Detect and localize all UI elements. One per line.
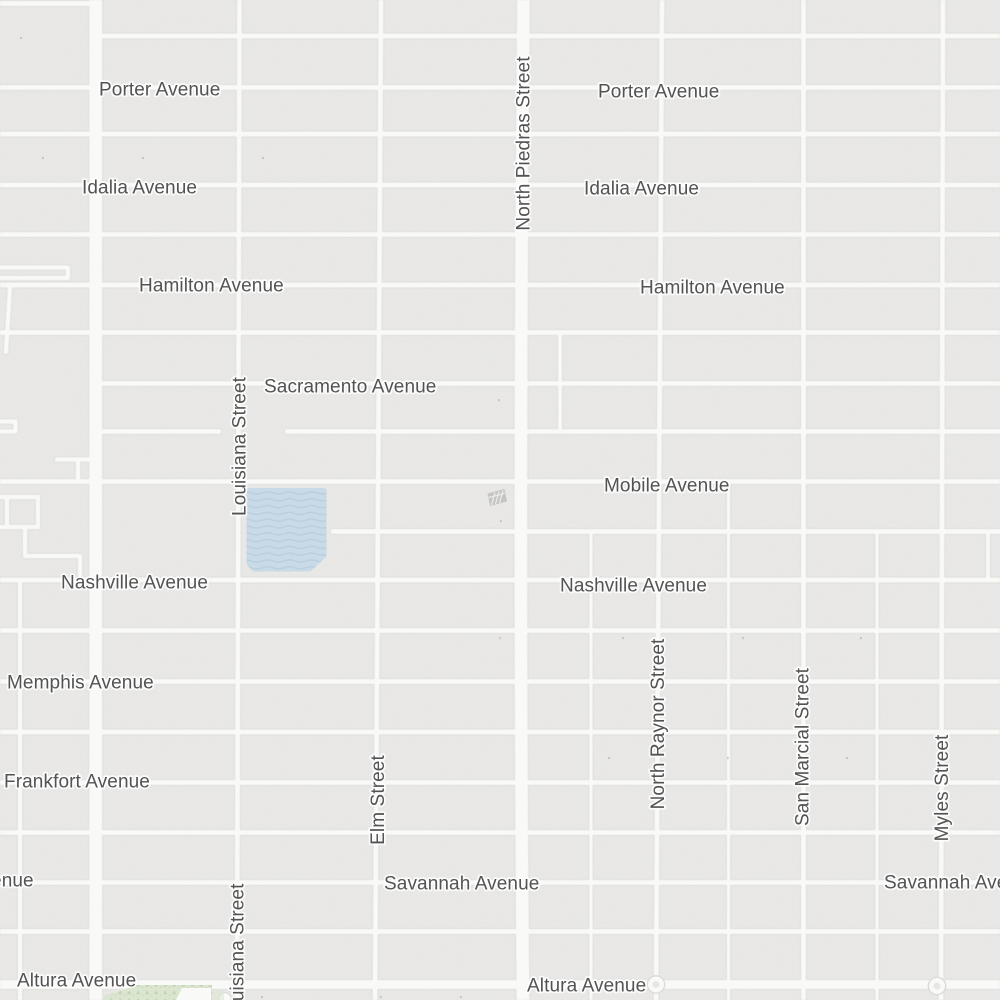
- svg-text:Savannah Avenue: Savannah Avenue: [884, 873, 1000, 894]
- svg-text:San Marcial Street: San Marcial Street: [793, 667, 814, 826]
- svg-text:North Raynor Street: North Raynor Street: [648, 638, 669, 809]
- svg-text:Sacramento Avenue: Sacramento Avenue: [264, 377, 436, 398]
- svg-text:Altura Avenue: Altura Avenue: [527, 976, 646, 997]
- svg-text:Savannah Avenue: Savannah Avenue: [384, 874, 539, 895]
- svg-text:Mobile Avenue: Mobile Avenue: [604, 476, 730, 497]
- svg-text:Porter Avenue: Porter Avenue: [99, 80, 220, 101]
- svg-text:Memphis Avenue: Memphis Avenue: [7, 673, 154, 694]
- svg-text:Idalia Avenue: Idalia Avenue: [82, 178, 197, 199]
- svg-text:Nashville Avenue: Nashville Avenue: [61, 573, 208, 594]
- svg-text:Avenue: Avenue: [0, 871, 34, 892]
- svg-text:North Piedras Street: North Piedras Street: [514, 56, 535, 231]
- svg-text:Hamilton Avenue: Hamilton Avenue: [640, 278, 785, 299]
- svg-text:Hamilton Avenue: Hamilton Avenue: [139, 276, 284, 297]
- svg-text:Louisiana Street: Louisiana Street: [230, 376, 251, 516]
- svg-text:Idalia Avenue: Idalia Avenue: [584, 179, 699, 200]
- svg-text:Elm Street: Elm Street: [368, 755, 389, 845]
- svg-text:Altura Avenue: Altura Avenue: [17, 971, 136, 992]
- svg-text:Myles Street: Myles Street: [932, 734, 953, 841]
- svg-text:Nashville Avenue: Nashville Avenue: [560, 576, 707, 597]
- svg-text:Porter Avenue: Porter Avenue: [598, 82, 719, 103]
- svg-text:Frankfort Avenue: Frankfort Avenue: [4, 772, 150, 793]
- svg-text:Louisiana Street: Louisiana Street: [228, 883, 249, 1000]
